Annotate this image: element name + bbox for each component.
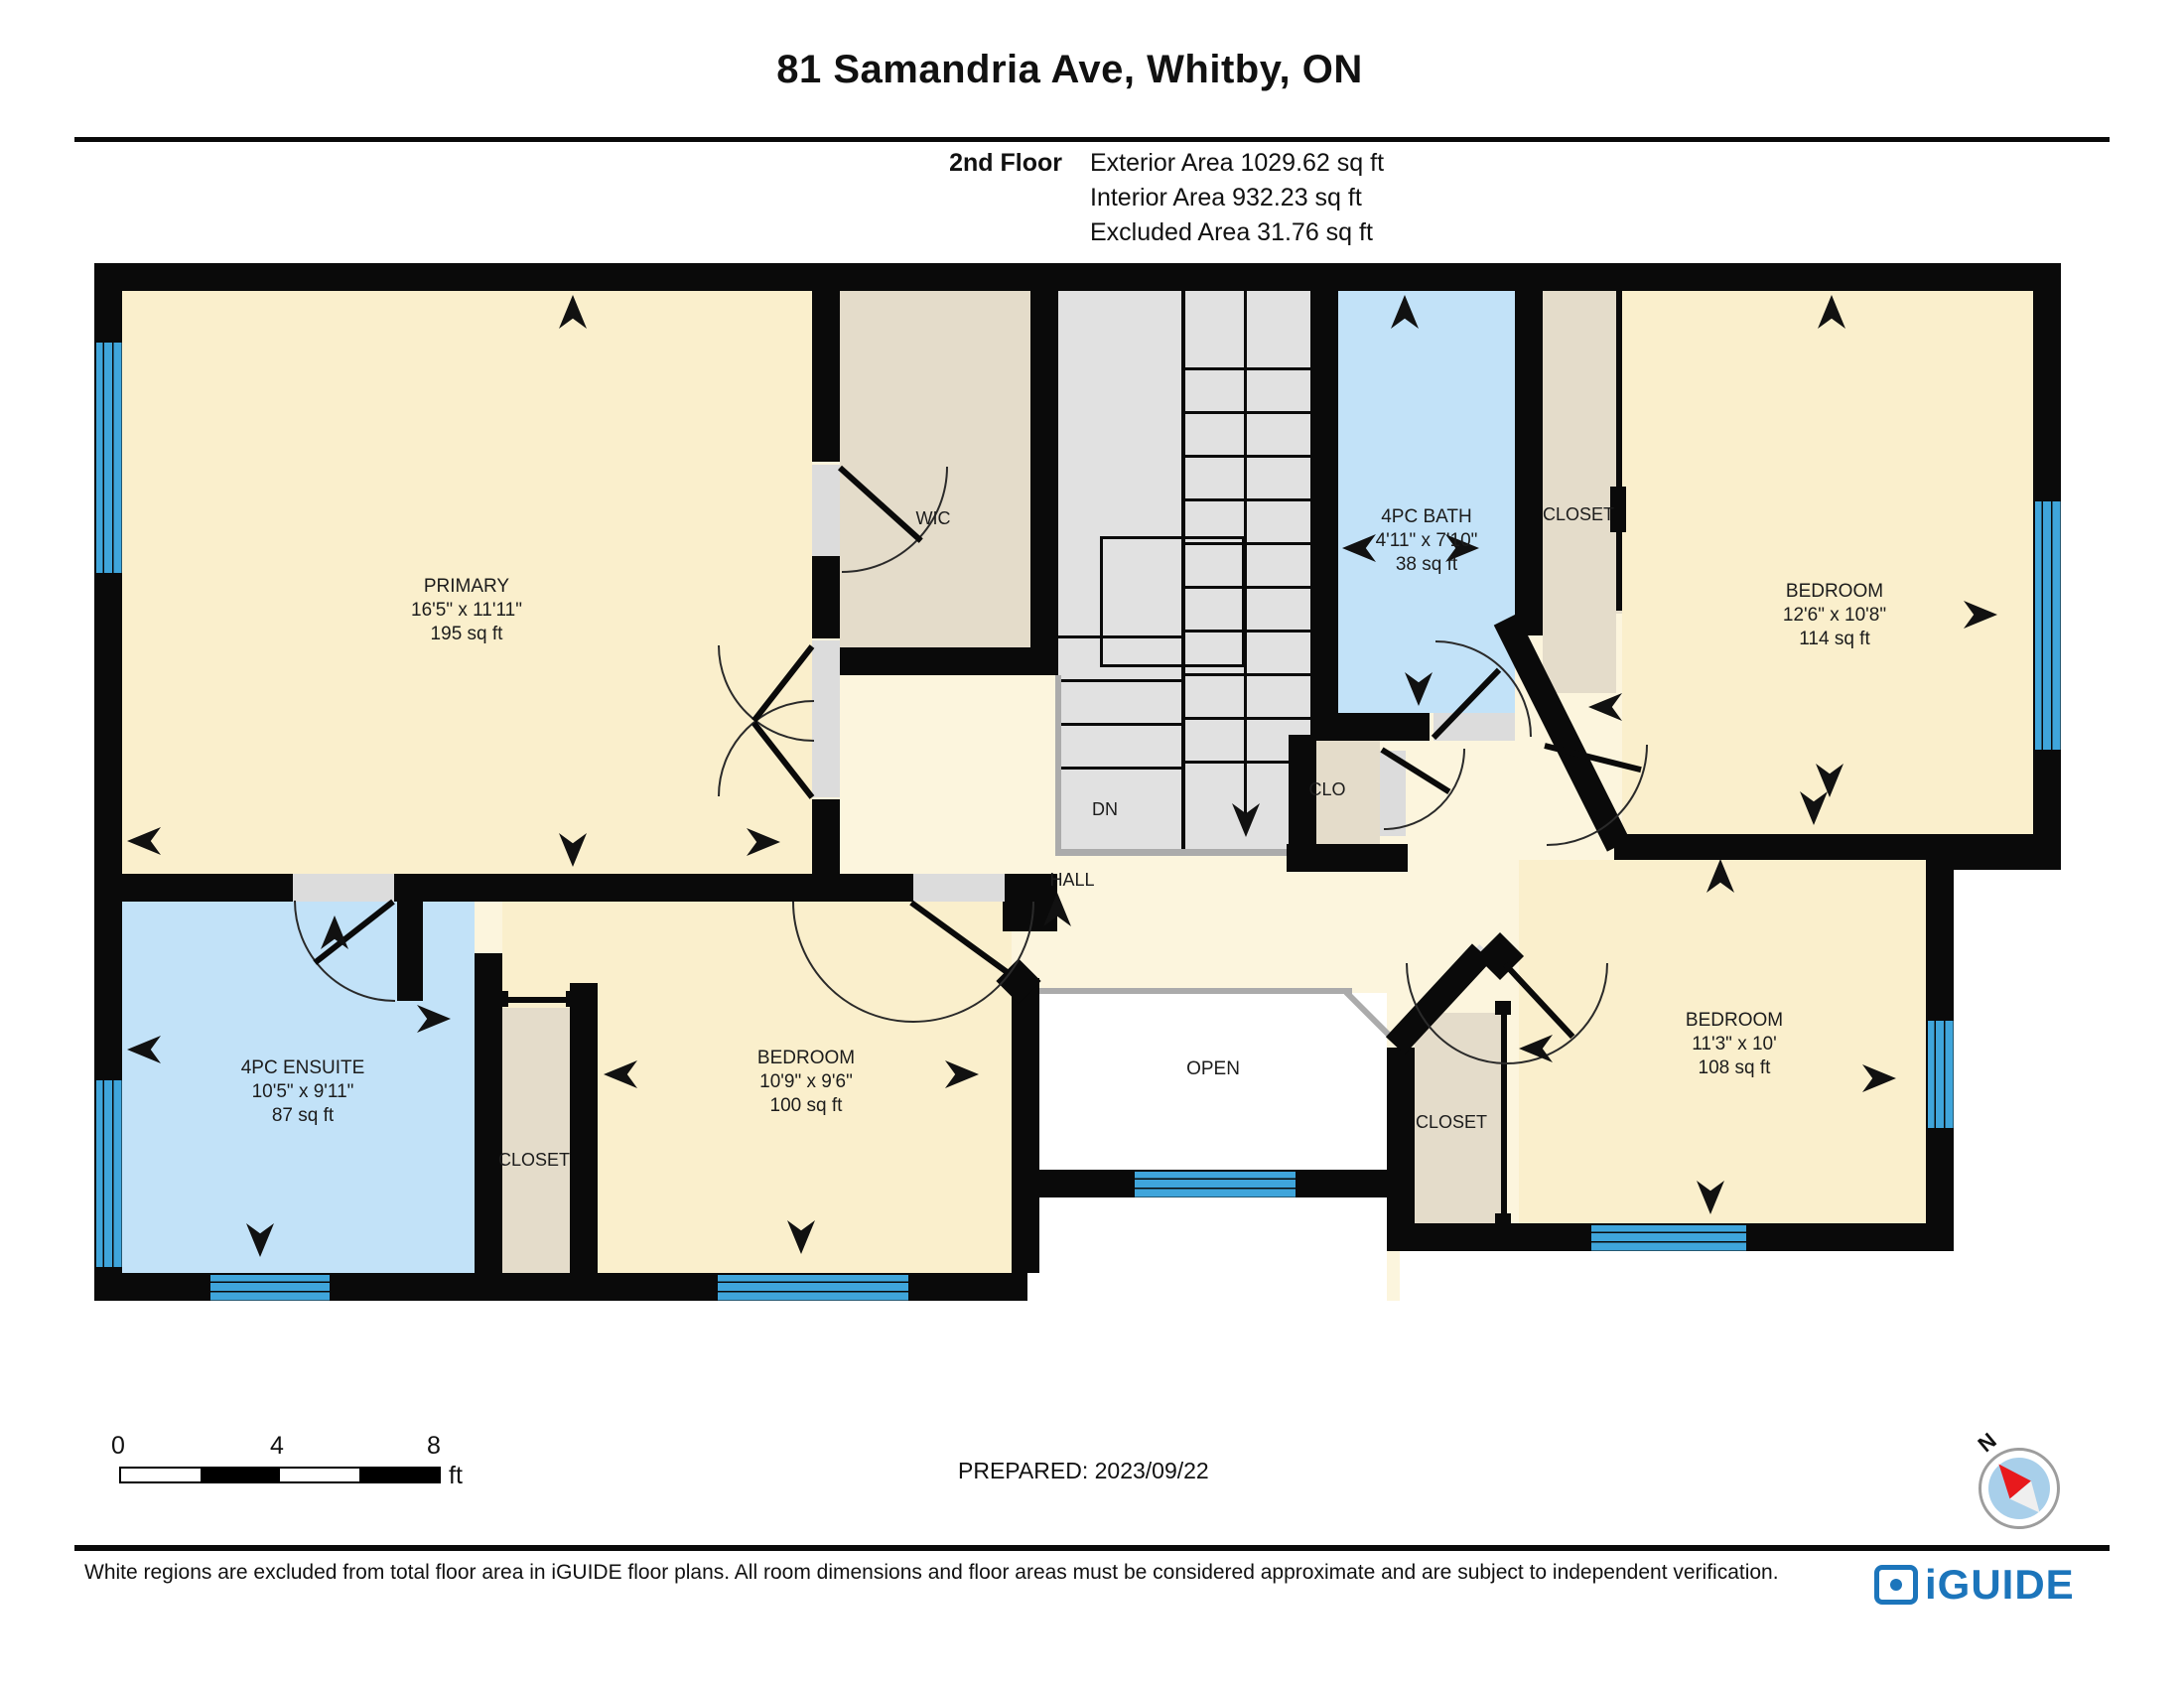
stair-tread	[1058, 723, 1183, 726]
room-label-bath: 4PC BATH 4'11" x 7'10" 38 sq ft	[1376, 505, 1478, 577]
room-label-bedroom-se: BEDROOM 11'3" x 10' 108 sq ft	[1686, 1009, 1783, 1080]
closet-door-line	[1616, 291, 1622, 611]
closet-door-stub	[566, 991, 580, 1007]
room-label-closet-sw: CLOSET	[498, 1148, 570, 1172]
wall-stub	[397, 902, 423, 1001]
floorplan-page: 81 Samandria Ave, Whitby, ON 2nd Floor E…	[0, 0, 2184, 1688]
stair-direction-line	[1244, 291, 1247, 814]
compass-icon	[1979, 1448, 2060, 1529]
clo-label: CLO	[1308, 777, 1345, 801]
window	[1926, 1021, 1954, 1128]
wall	[570, 983, 598, 1273]
wall	[812, 554, 840, 638]
floor-label: 2nd Floor	[764, 149, 1062, 178]
iguide-logo: iGUIDE	[1874, 1561, 2075, 1609]
room-label-closet-top: CLOSET	[1543, 502, 1614, 526]
door-threshold	[913, 874, 1005, 902]
scale-segment	[201, 1469, 280, 1481]
room-name: WIC	[916, 506, 951, 530]
scale-segment	[280, 1469, 359, 1481]
wall	[1310, 263, 1338, 741]
stair-tread	[1183, 411, 1310, 414]
stair-tread	[1183, 673, 1310, 676]
door-threshold	[293, 874, 394, 902]
room-name: CLOSET	[1543, 502, 1614, 526]
stair-tread	[1183, 498, 1310, 501]
room-name: 4PC BATH	[1376, 505, 1478, 529]
disclaimer-text: White regions are excluded from total fl…	[84, 1561, 1779, 1585]
excluded-region	[1027, 1197, 1387, 1301]
room-dims: 11'3" x 10'	[1686, 1033, 1783, 1056]
room-name: 4PC ENSUITE	[241, 1056, 365, 1080]
room-name: BEDROOM	[757, 1047, 855, 1070]
window	[1135, 1170, 1296, 1197]
excluded-area: Excluded Area 31.76 sq ft	[1090, 218, 1373, 247]
closet-door-stub	[494, 991, 508, 1007]
stair-tread	[1183, 367, 1310, 370]
header-divider	[74, 137, 2110, 142]
room-name: BEDROOM	[1686, 1009, 1783, 1033]
window	[718, 1273, 908, 1301]
prepared-date: PREPARED: 2023/09/22	[958, 1458, 1209, 1484]
scale-segment	[359, 1469, 439, 1481]
room-dims: 10'9" x 9'6"	[757, 1070, 855, 1094]
wall	[1387, 1048, 1415, 1251]
room-area: 108 sq ft	[1686, 1056, 1783, 1080]
room-bedroom-ne	[1622, 291, 2033, 834]
wall	[1614, 834, 1954, 860]
interior-area: Interior Area 932.23 sq ft	[1090, 184, 1362, 212]
room-name: CLOSET	[498, 1148, 570, 1172]
stair-tread	[1058, 679, 1183, 682]
room-label-primary: PRIMARY 16'5" x 11'11" 195 sq ft	[411, 575, 522, 646]
stairs-dn-label: DN	[1092, 797, 1118, 821]
room-area: 38 sq ft	[1376, 553, 1478, 577]
window	[2033, 501, 2061, 750]
page-title: 81 Samandria Ave, Whitby, ON	[0, 48, 2139, 92]
room-label-bedroom-s: BEDROOM 10'9" x 9'6" 100 sq ft	[757, 1047, 855, 1118]
scale-tick-4: 4	[270, 1432, 284, 1461]
room-area: 195 sq ft	[411, 623, 522, 646]
wall	[812, 647, 1058, 675]
stair-edge	[1055, 675, 1061, 856]
door-threshold	[812, 465, 840, 556]
iguide-logo-text: iGUIDE	[1925, 1561, 2075, 1609]
stair-edge	[1058, 849, 1310, 856]
room-area: 87 sq ft	[241, 1104, 365, 1128]
wall	[1030, 263, 1058, 675]
room-area: 114 sq ft	[1783, 628, 1886, 651]
room-bath	[1338, 291, 1515, 713]
hall-label: HALL	[1049, 868, 1094, 892]
stair-tread	[1058, 767, 1183, 770]
room-label-closet-se: CLOSET	[1416, 1110, 1487, 1134]
room-closet-sw	[502, 1008, 570, 1273]
room-name: BEDROOM	[1783, 580, 1886, 604]
excluded-region	[1400, 1251, 2061, 1301]
camera-lens-dot	[1890, 1579, 1902, 1591]
room-dims: 12'6" x 10'8"	[1783, 604, 1886, 628]
wall	[1012, 978, 1039, 1273]
window	[1591, 1223, 1746, 1251]
room-label-open: OPEN	[1186, 1057, 1240, 1081]
closet-door-line	[502, 997, 570, 1003]
wall	[1515, 263, 1543, 635]
exterior-area: Exterior Area 1029.62 sq ft	[1090, 149, 1384, 178]
window	[94, 1080, 122, 1267]
wall	[94, 263, 2061, 291]
wall	[1287, 844, 1408, 872]
stair-tread	[1183, 455, 1310, 458]
room-name: PRIMARY	[411, 575, 522, 599]
wall	[1310, 713, 1430, 741]
room-label-ensuite: 4PC ENSUITE 10'5" x 9'11" 87 sq ft	[241, 1056, 365, 1128]
footer-divider	[74, 1545, 2110, 1551]
excluded-region	[1954, 870, 2061, 1301]
camera-icon	[1874, 1565, 1918, 1605]
room-closet-top	[1543, 291, 1622, 614]
scale-tick-8: 8	[427, 1432, 441, 1461]
room-dims: 4'11" x 7'10"	[1376, 529, 1478, 553]
scale-segment	[121, 1469, 201, 1481]
stair-opening-rail	[1100, 536, 1245, 667]
room-dims: 16'5" x 11'11"	[411, 599, 522, 623]
scale-unit: ft	[449, 1462, 463, 1490]
room-open	[1039, 993, 1387, 1170]
door-threshold	[812, 640, 840, 797]
stair-tread	[1183, 717, 1310, 720]
room-closet-top-ext	[1543, 614, 1616, 693]
room-name: CLOSET	[1416, 1110, 1487, 1134]
closet-door-stub	[1495, 1213, 1511, 1227]
wall	[812, 291, 840, 462]
scale-tick-0: 0	[111, 1432, 125, 1461]
wall	[94, 874, 913, 902]
room-name: OPEN	[1186, 1057, 1240, 1081]
room-label-bedroom-ne: BEDROOM 12'6" x 10'8" 114 sq ft	[1783, 580, 1886, 651]
room-dims: 10'5" x 9'11"	[241, 1080, 365, 1104]
scale-bar	[119, 1467, 441, 1483]
window	[210, 1273, 330, 1301]
room-label-wic: WIC	[916, 506, 951, 530]
room-area: 100 sq ft	[757, 1094, 855, 1118]
window	[94, 343, 122, 573]
open-edge	[1039, 988, 1352, 994]
